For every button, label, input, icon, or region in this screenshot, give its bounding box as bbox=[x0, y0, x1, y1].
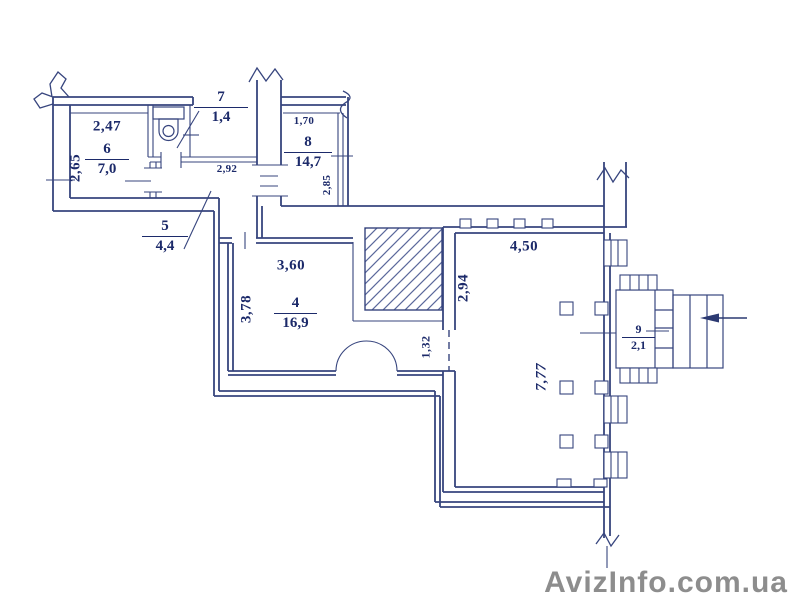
room-6-label: 6 7,0 bbox=[85, 141, 129, 178]
toilet-icon bbox=[153, 107, 184, 141]
door-swing-arc-icon bbox=[336, 341, 397, 371]
dim-2-85: 2,85 bbox=[321, 175, 333, 195]
room-5-area: 4,4 bbox=[142, 236, 188, 255]
dim-2-92: 2,92 bbox=[217, 163, 237, 175]
room-5-label: 5 4,4 bbox=[142, 218, 188, 255]
dim-2-65: 2,65 bbox=[68, 154, 85, 182]
porch-steps-icon bbox=[673, 295, 723, 368]
room-4-label: 4 16,9 bbox=[274, 295, 317, 332]
room-9-area: 2,1 bbox=[622, 337, 655, 352]
dim-4-50: 4,50 bbox=[510, 239, 538, 256]
room-6-area: 7,0 bbox=[85, 159, 129, 178]
room-8-number: 8 bbox=[284, 134, 332, 152]
columns bbox=[557, 302, 608, 487]
dim-1-70: 1,70 bbox=[294, 115, 314, 127]
room-9-label: 9 2,1 bbox=[622, 323, 655, 353]
room-5-number: 5 bbox=[142, 218, 188, 236]
room-8-label: 8 14,7 bbox=[284, 134, 332, 171]
corridor-wall bbox=[257, 80, 281, 238]
floorplan-drawing bbox=[0, 0, 791, 600]
dim-7-77: 7,77 bbox=[534, 363, 551, 391]
room-6-number: 6 bbox=[85, 141, 129, 159]
room-8-area: 14,7 bbox=[284, 152, 332, 171]
dim-2-94: 2,94 bbox=[456, 274, 473, 302]
corridor-door-jambs bbox=[252, 165, 288, 196]
room-7-number: 7 bbox=[194, 89, 248, 107]
watermark: AvizInfo.com.ua bbox=[544, 566, 788, 600]
dim-2-47: 2,47 bbox=[93, 119, 121, 136]
room-7-area: 1,4 bbox=[194, 107, 248, 126]
dim-3-60: 3,60 bbox=[277, 258, 305, 275]
room-9-number: 9 bbox=[622, 323, 655, 337]
dim-3-78: 3,78 bbox=[239, 295, 256, 323]
hatched-shaft bbox=[365, 228, 442, 310]
dim-1-32: 1,32 bbox=[419, 336, 434, 359]
room-7-label: 7 1,4 bbox=[194, 89, 248, 126]
room-4-number: 4 bbox=[274, 295, 317, 313]
room-4-area: 16,9 bbox=[274, 313, 317, 332]
floorplan: 2,47 2,65 2,92 1,70 2,85 3,60 3,78 4,50 … bbox=[0, 0, 791, 600]
